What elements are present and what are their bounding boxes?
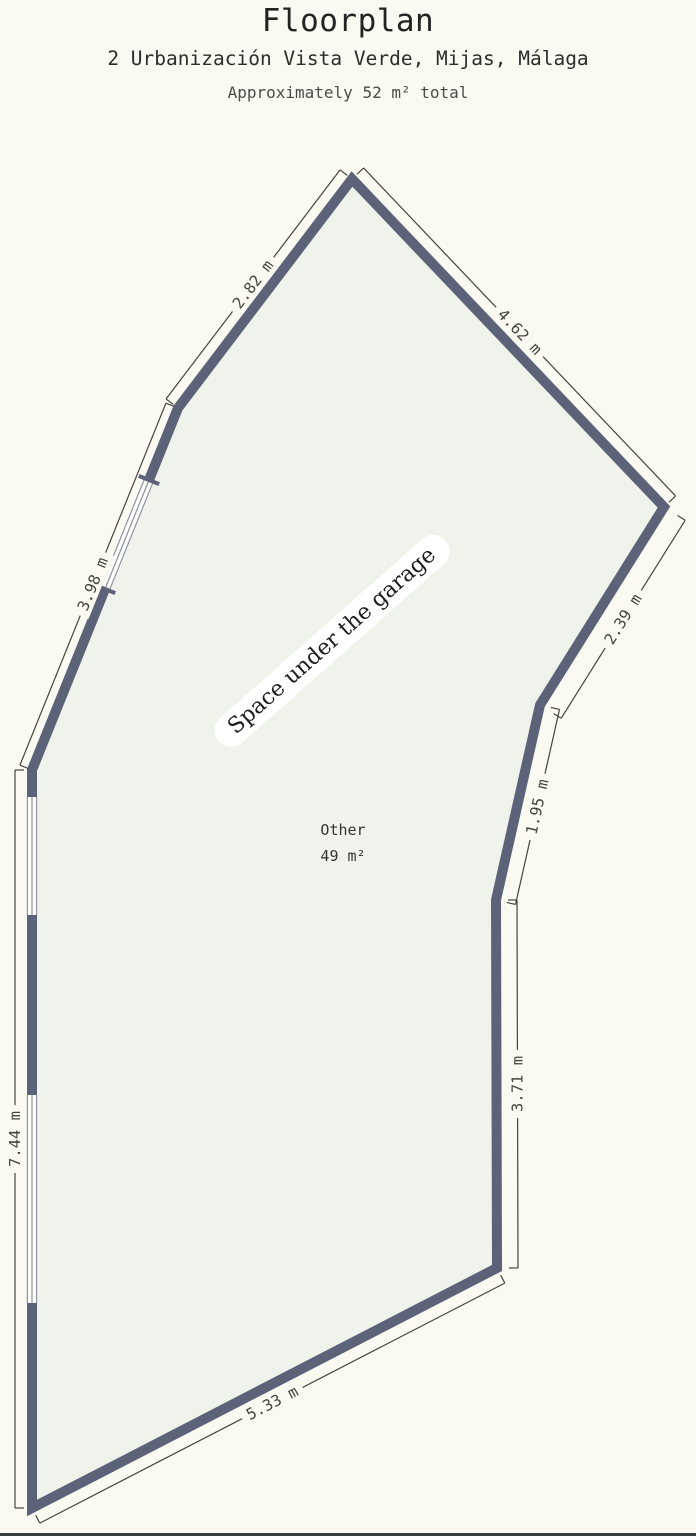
floorplan-drawing: 2.82 m4.62 m2.39 m1.95 m3.71 m5.33 m7.44… (0, 0, 696, 1536)
floorplan-page: Floorplan 2 Urbanización Vista Verde, Mi… (0, 0, 696, 1536)
dimension-tick (340, 170, 347, 175)
total-area-note: Approximately 52 m² total (0, 83, 696, 102)
room-name: Other (320, 817, 365, 843)
dimension-tick (507, 902, 516, 904)
address-subtitle: 2 Urbanización Vista Verde, Mijas, Málag… (0, 47, 696, 70)
dimension-tick (551, 707, 560, 709)
room-area: 49 m² (320, 843, 365, 869)
dimension-label: 7.44 m (4, 1105, 24, 1173)
page-title: Floorplan (0, 3, 696, 39)
floorplan-header: Floorplan 2 Urbanización Vista Verde, Mi… (0, 0, 696, 102)
dimension-tick (669, 496, 676, 502)
dimension-tick (20, 765, 28, 768)
dimension-tick (678, 515, 686, 520)
dimension-tick (357, 168, 364, 174)
room-label: Other 49 m² (320, 817, 365, 870)
svg-text:3.71 m: 3.71 m (508, 1056, 526, 1112)
svg-text:7.44 m: 7.44 m (6, 1111, 24, 1167)
dimension-tick (501, 1275, 505, 1283)
dimension-tick (36, 1515, 40, 1523)
floorplan-canvas: 2.82 m4.62 m2.39 m1.95 m3.71 m5.33 m7.44… (0, 0, 696, 1536)
dimension-label: 3.71 m (506, 1050, 526, 1118)
